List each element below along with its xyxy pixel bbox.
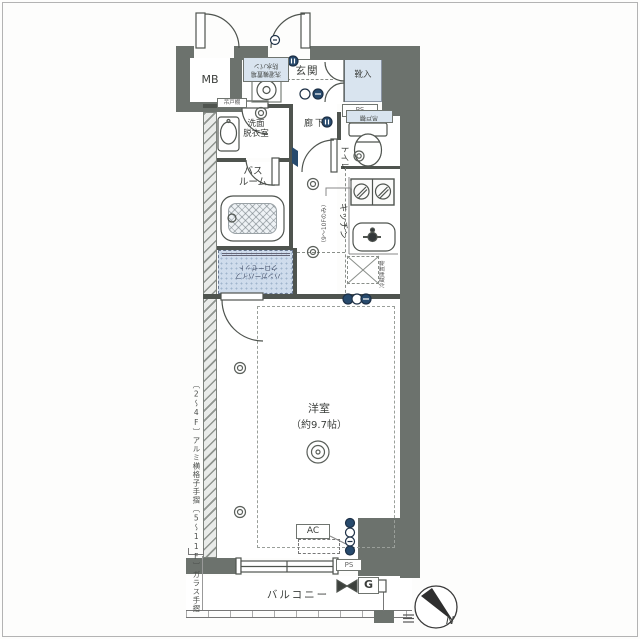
mb-label: MB — [190, 73, 230, 87]
shoe-cabinet-label: 靴入 — [346, 70, 380, 82]
bathroom-label: バスルーム — [228, 163, 278, 192]
genkan-step-line — [287, 79, 333, 80]
genkan-label: 玄関 — [284, 64, 330, 79]
kitchen-label: キッチン — [336, 196, 349, 246]
wall-toilet-left — [337, 112, 341, 140]
closet-label: ハンガーパイプクローゼット — [226, 261, 290, 283]
bathtub-texture — [228, 203, 277, 234]
main-room-label: 洋室 （約9.7帖） — [280, 400, 358, 434]
wall-bath-top-b — [272, 158, 291, 162]
ps-bottom-label: PS — [336, 559, 362, 571]
wall-bath-top-a — [217, 158, 246, 162]
gas-meter-label: G — [358, 577, 379, 594]
floor-plan: MB 玄関 靴入 PS 洗面脱衣室 廊下 トイレ バスルーム キッチン （9〜1… — [0, 0, 640, 639]
fridge-label: 冷蔵庫置場 — [378, 256, 388, 292]
balcony-divider-line — [383, 590, 384, 611]
mb-door-gap — [194, 46, 234, 58]
wall-mainroom-top-a — [203, 294, 221, 299]
washer-label: 洗濯機置場防水パン — [243, 57, 289, 82]
closet-hanger-pipe — [222, 253, 290, 256]
wall-bath-closet — [217, 246, 293, 250]
note-leader-line — [202, 556, 203, 610]
kitchen-note-label: （9〜10Fのみ） — [320, 192, 331, 256]
toilet-label: トイレ — [337, 137, 349, 179]
ac-unit-box — [298, 539, 340, 554]
handrail-note: 〔2〜4F〕アルミ横格子手摺 〔5〜11F〕ガラス手摺 — [183, 438, 209, 556]
wall-closet-right — [293, 248, 297, 298]
balcony-label: バルコニー — [260, 587, 336, 603]
wall-right — [400, 116, 420, 578]
washroom-label: 洗面脱衣室 — [231, 117, 281, 143]
wall-hallway-left — [289, 104, 293, 248]
wall-toilet-kitchen — [341, 166, 400, 169]
fridge-space-box — [347, 256, 379, 284]
ac-label: AC — [296, 524, 330, 539]
wall-top-right-block — [382, 46, 420, 116]
washroom-cupboard-label: 吊戸棚 — [217, 98, 247, 108]
toilet-cupboard-label: 吊戸棚 — [346, 110, 393, 123]
balcony-rail-post — [374, 610, 394, 623]
wall-mainroom-top-b — [263, 294, 400, 299]
hallway-label: 廊下 — [297, 117, 333, 131]
compass-north-label: N — [442, 614, 458, 628]
